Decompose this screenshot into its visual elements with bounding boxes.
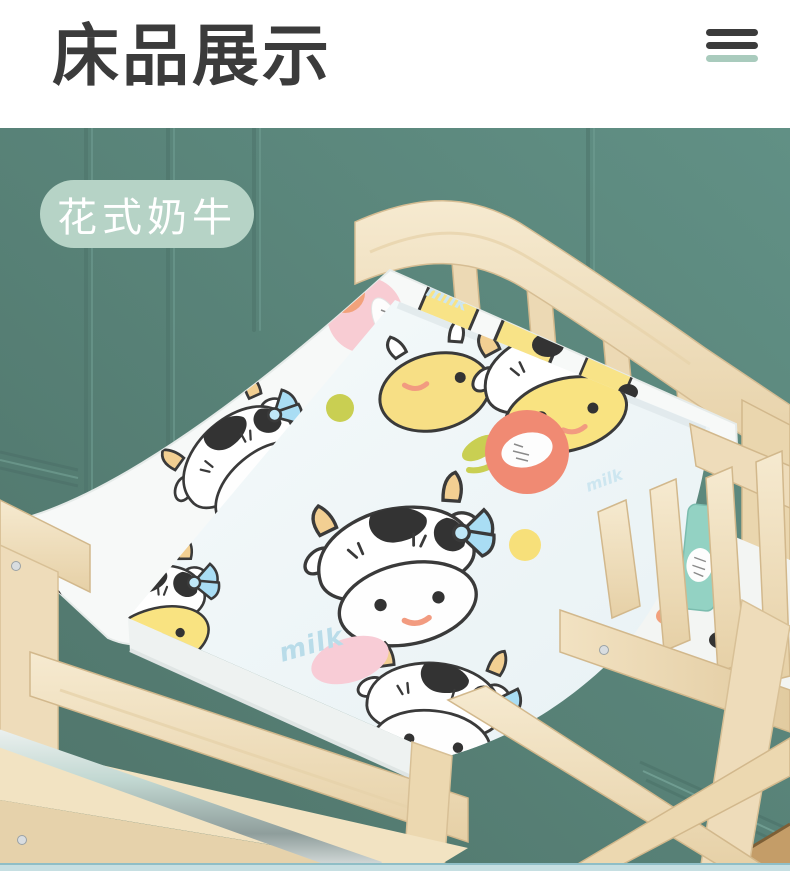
menu-bar-middle (706, 42, 758, 49)
product-photo: milk milk (0, 0, 790, 871)
pattern-badge: 花式奶牛 (40, 180, 254, 248)
section-header: 床品展示 (0, 0, 790, 128)
menu-bar-top (706, 29, 758, 36)
menu-icon[interactable] (706, 29, 758, 57)
section-title: 床品展示 (52, 20, 332, 94)
pattern-badge-label: 花式奶牛 (57, 185, 237, 243)
menu-bar-bottom (706, 55, 758, 62)
product-page-section: 床品展示 花式奶牛 (0, 0, 790, 871)
bottom-strip (0, 863, 790, 871)
